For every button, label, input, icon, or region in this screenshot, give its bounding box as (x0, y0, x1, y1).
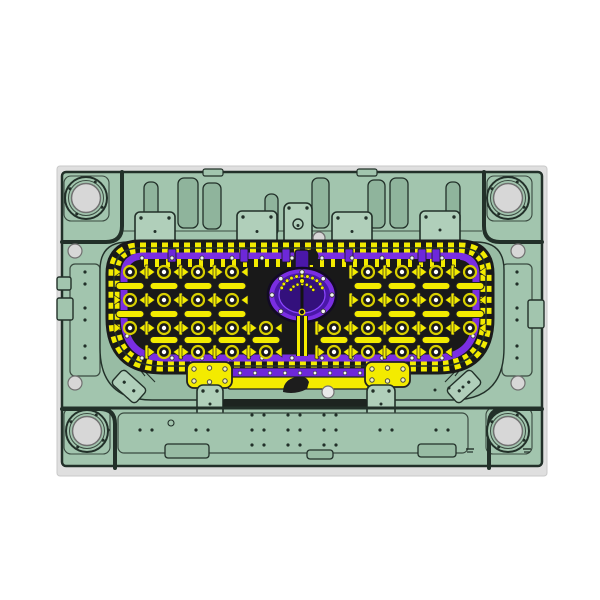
rail-screw-dot (515, 318, 518, 321)
guide-bushing-bore (73, 417, 102, 446)
edge-notch (57, 277, 71, 290)
band-screw-dot (140, 256, 144, 260)
ejector-pin-center (230, 270, 234, 274)
ejector-pin-center (400, 326, 404, 330)
ejector-pin-center (332, 350, 336, 354)
bushing-screw-dot (523, 206, 526, 209)
bushing-screw-dot (516, 413, 519, 416)
ejector-pin-center (400, 298, 404, 302)
bushing-screw-dot (76, 446, 79, 449)
bushing-screw-dot (95, 413, 98, 416)
bolt-hole-dot (434, 428, 437, 431)
plate-screw (370, 367, 374, 371)
grille-slat (218, 311, 246, 318)
bushing-screw-dot (68, 187, 71, 190)
runner-purple-patch (418, 249, 426, 262)
emblem-pin (299, 309, 305, 315)
ejector-pin-center (162, 350, 166, 354)
bolt-hole-dot (250, 428, 253, 431)
ejector-pin-center (230, 350, 234, 354)
ejector-pin-center (468, 270, 472, 274)
rail-screw-dot (83, 318, 86, 321)
grille-slat (388, 311, 416, 318)
emblem-dot (282, 282, 286, 286)
support-pillar (322, 386, 334, 398)
ejector-pin-center (264, 350, 268, 354)
bolt-hole-dot (262, 428, 265, 431)
bolt-hole-dot (334, 428, 337, 431)
ejector-pin-center (366, 350, 370, 354)
rail-screw-dot (515, 270, 518, 273)
bolt-hole-dot (150, 428, 153, 431)
ejector-pin-center (230, 298, 234, 302)
bushing-screw-dot (75, 213, 78, 216)
slide-slot (390, 178, 408, 228)
grille-slat (218, 283, 246, 290)
return-pin (68, 376, 82, 390)
ejector-pin-center (264, 326, 268, 330)
ejector-pin-center (196, 270, 200, 274)
rail-screw-dot (515, 356, 518, 359)
edge-notch (57, 298, 73, 320)
bolt-hole-dot (378, 428, 381, 431)
bottom-notch (307, 450, 333, 459)
rail-screw-dot (515, 282, 518, 285)
grille-slat (456, 311, 484, 318)
ejector-pin-center (366, 270, 370, 274)
ejector-pin-center (400, 270, 404, 274)
top-edge-tab (203, 169, 223, 176)
emblem-screw-dot (270, 293, 274, 297)
grille-slat (116, 311, 144, 318)
band-screw-dot (410, 256, 414, 260)
emblem-dot (305, 283, 308, 286)
emblem-screw-dot (279, 277, 283, 281)
grille-slat (354, 311, 382, 318)
guide-bushing-bore (72, 184, 101, 213)
strip-screw-dot (298, 371, 302, 375)
emblem-dot (295, 275, 299, 279)
plate-screw (401, 378, 405, 382)
band-screw-dot (320, 356, 324, 360)
bolt-hole-dot (250, 413, 253, 416)
plate-screw (192, 367, 196, 371)
return-pin (511, 244, 525, 258)
grille-slat (184, 337, 212, 344)
bushing-screw-dot (101, 206, 104, 209)
emblem-dot (309, 285, 312, 288)
bottom-notch (418, 444, 456, 457)
bushing-screw-dot (102, 439, 105, 442)
plate-screw (223, 379, 227, 383)
band-screw-dot (290, 356, 294, 360)
plate-screw (385, 379, 389, 383)
bolt-hole-dot (448, 387, 451, 390)
bolt-hole-dot (298, 413, 301, 416)
bolt-hole-dot (322, 428, 325, 431)
emblem-dot (315, 279, 319, 283)
mold-cad-render (0, 0, 600, 600)
emblem-screw-dot (330, 293, 334, 297)
guide-bushing-bore (494, 417, 523, 446)
screw-dot (209, 403, 212, 406)
bolt-hole-dot (286, 428, 289, 431)
bottom-notch (165, 444, 209, 458)
emblem-dot (306, 275, 310, 279)
strip-screw-dot (358, 371, 362, 375)
screw-dot (297, 224, 300, 227)
grille-slat (354, 283, 382, 290)
plate-screw (223, 367, 227, 371)
grille-slat (116, 283, 144, 290)
return-pin (68, 244, 82, 258)
screw-dot (215, 389, 218, 392)
runner-purple-patch (432, 249, 440, 262)
screw-dot (305, 206, 308, 209)
ejector-pin-center (196, 350, 200, 354)
rail-screw-dot (515, 344, 518, 347)
grille-slat (184, 283, 212, 290)
runner-purple-patch (240, 249, 248, 262)
bushing-screw-dot (490, 420, 493, 423)
ejector-pin-center (332, 326, 336, 330)
rail-screw-dot (83, 282, 86, 285)
slide-slot (178, 178, 198, 228)
rail-screw-dot (83, 344, 86, 347)
plate-screw (207, 380, 211, 384)
bolt-hole-dot (390, 428, 393, 431)
strip-screw-dot (268, 371, 272, 375)
grille-slat (150, 337, 178, 344)
ejector-pin-center (366, 298, 370, 302)
runner-purple-patch (282, 249, 290, 262)
band-screw-dot (290, 256, 294, 260)
bolt-hole-dot (334, 443, 337, 446)
rail-screw-dot (83, 306, 86, 309)
plate-screw (401, 367, 405, 371)
bolt-hole-dot (298, 428, 301, 431)
screw-dot (256, 230, 259, 233)
ejector-pin-center (162, 270, 166, 274)
bolt-hole-dot (322, 443, 325, 446)
grille-slat (422, 337, 450, 344)
ejector-pin-center (162, 326, 166, 330)
screw-dot (201, 389, 204, 392)
ejector-pin-center (434, 350, 438, 354)
emblem-screw-dot (321, 309, 325, 313)
rail-screw-dot (83, 270, 86, 273)
bolt-hole-dot (286, 443, 289, 446)
screw-dot (380, 403, 383, 406)
emblem-dot (280, 286, 284, 290)
bolt-hole-dot (262, 413, 265, 416)
band-screw-dot (440, 256, 444, 260)
emblem-dot (312, 288, 315, 291)
ejector-pin-center (434, 270, 438, 274)
ejector-pin-center (468, 298, 472, 302)
top-edge-tab (357, 169, 377, 176)
grille-slat (218, 337, 246, 344)
channel-yellow-line (304, 316, 307, 356)
band-screw-dot (350, 256, 354, 260)
bolt-hole-dot (194, 428, 197, 431)
bolt-hole-dot (298, 443, 301, 446)
grille-slat (354, 337, 382, 344)
screw-dot (351, 230, 354, 233)
ejector-pin-center (434, 298, 438, 302)
band-screw-dot (230, 256, 234, 260)
emblem-screw-dot (300, 270, 304, 274)
screw-dot (154, 230, 157, 233)
bolt-hole-dot (206, 428, 209, 431)
edge-notch (528, 300, 544, 328)
plate-screw (370, 378, 374, 382)
bolt-hole-dot (286, 413, 289, 416)
grille-slat (422, 283, 450, 290)
screw-dot (139, 216, 142, 219)
bolt-hole-dot (334, 413, 337, 416)
ejector-pin-center (400, 350, 404, 354)
bushing-screw-dot (523, 439, 526, 442)
screw-dot (167, 216, 170, 219)
emblem-dot (289, 288, 292, 291)
plate-screw (207, 366, 211, 370)
ejector-pin-center (434, 326, 438, 330)
screw-dot (269, 215, 272, 218)
band-screw-dot (320, 256, 324, 260)
plate-screw (192, 379, 196, 383)
strip-screw-dot (283, 371, 287, 375)
ejector-pin-center (128, 270, 132, 274)
bushing-screw-dot (94, 180, 97, 183)
emblem-dot (300, 274, 304, 278)
band-screw-dot (410, 356, 414, 360)
emblem-dot (292, 285, 295, 288)
bolt-hole-dot (434, 389, 437, 392)
grille-slat (456, 283, 484, 290)
grille-slat (422, 311, 450, 318)
rail-screw-dot (83, 356, 86, 359)
grille-slat (150, 283, 178, 290)
guide-bushing-bore (494, 184, 523, 213)
emblem-dot (311, 276, 315, 280)
screw-dot (241, 215, 244, 218)
emblem-dot (296, 283, 299, 286)
rail-screw-dot (515, 306, 518, 309)
screw-dot (424, 215, 427, 218)
bushing-screw-dot (497, 446, 500, 449)
screw-dot (439, 229, 442, 232)
emblem-screw-dot (279, 309, 283, 313)
ejector-pin-center (196, 298, 200, 302)
ejector-pin-center (128, 298, 132, 302)
ejector-pin-center (366, 326, 370, 330)
strip-screw-dot (313, 371, 317, 375)
ejector-pin-center (468, 326, 472, 330)
band-screw-dot (140, 356, 144, 360)
emblem-screw-dot (321, 277, 325, 281)
ejector-pin-center (196, 326, 200, 330)
ejector-pin-center (162, 298, 166, 302)
strip-screw-dot (343, 371, 347, 375)
grille-slat (388, 337, 416, 344)
bolt-hole-dot (250, 443, 253, 446)
channel-yellow-line (297, 316, 300, 356)
band-screw-dot (170, 356, 174, 360)
band-screw-dot (170, 256, 174, 260)
bushing-screw-dot (69, 420, 72, 423)
grille-slat (184, 311, 212, 318)
grille-slat (320, 337, 348, 344)
bolt-hole-dot (446, 428, 449, 431)
band-screw-dot (380, 256, 384, 260)
screw-dot (287, 206, 290, 209)
ejector-pin-center (230, 326, 234, 330)
ejector-pin-center (128, 326, 132, 330)
screw-dot (371, 389, 374, 392)
screw-dot (336, 216, 339, 219)
grille-slat (150, 311, 178, 318)
screw-dot (364, 216, 367, 219)
emblem-dot (320, 286, 324, 290)
injection-mold-top-view (0, 0, 600, 600)
screw-dot (452, 215, 455, 218)
screw-dot (387, 389, 390, 392)
bolt-hole-dot (322, 413, 325, 416)
bushing-screw-dot (497, 213, 500, 216)
emblem-dot (290, 276, 294, 280)
band-screw-dot (260, 256, 264, 260)
strip-screw-dot (238, 371, 242, 375)
return-pin (511, 376, 525, 390)
strip-screw-dot (328, 371, 332, 375)
emblem-dot (318, 282, 322, 286)
bolt-hole-dot (462, 386, 465, 389)
slide-slot (312, 178, 329, 228)
plate-screw (385, 366, 389, 370)
bolt-hole-dot (262, 443, 265, 446)
bushing-screw-dot (516, 180, 519, 183)
band-screw-dot (200, 256, 204, 260)
bushing-screw-dot (490, 187, 493, 190)
grille-slat (252, 337, 280, 344)
slide-slot (203, 183, 221, 229)
strip-screw-dot (253, 371, 257, 375)
emblem-dot (285, 279, 289, 283)
emblem-pin (300, 279, 305, 284)
grille-slat (388, 283, 416, 290)
bolt-hole-dot (138, 428, 141, 431)
